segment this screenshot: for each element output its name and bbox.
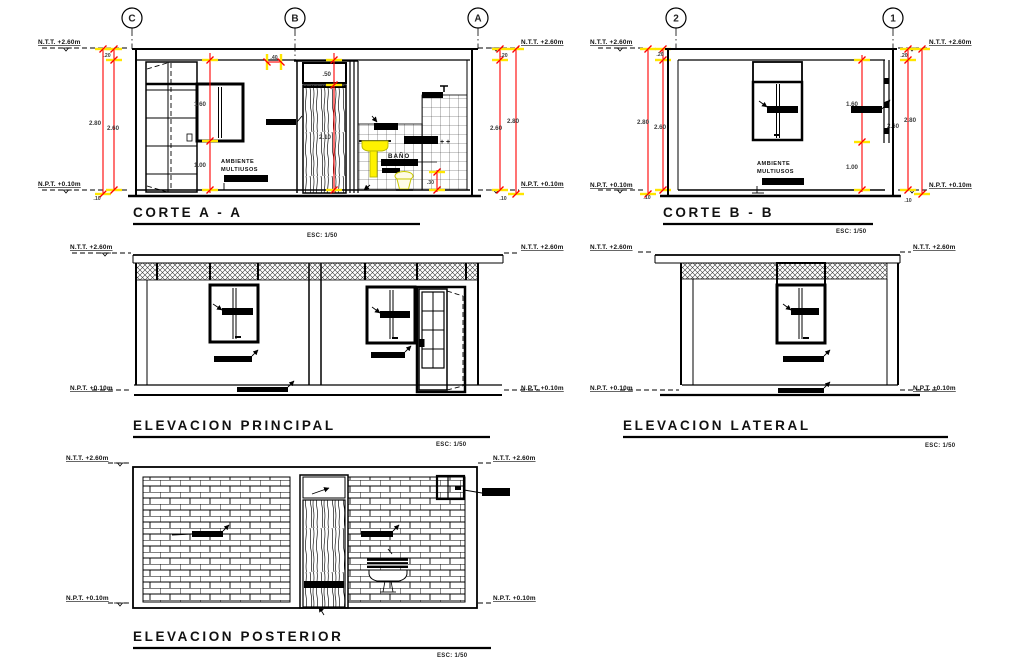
dim-010: .10 bbox=[904, 198, 911, 204]
redacted-note-bar bbox=[380, 311, 410, 318]
redacted-note-bar bbox=[224, 175, 268, 182]
level-label-ntt: N.T.T. +2.60m bbox=[493, 455, 536, 462]
dim-260: 2.60 bbox=[490, 125, 503, 132]
level-label-npt: N.P.T. +0.10m bbox=[493, 595, 536, 602]
level-label-ntt: N.T.T. +2.60m bbox=[521, 244, 564, 251]
redacted-note-bar bbox=[361, 531, 393, 537]
dim-100: 1.00 bbox=[194, 162, 207, 169]
redacted-note-bar bbox=[783, 356, 824, 362]
roof-slab bbox=[133, 255, 503, 263]
level-label-npt: N.P.T. +0.10m bbox=[70, 385, 113, 392]
room-name-line2: MULTIUSOS bbox=[221, 167, 258, 173]
tap-cross-symbols: + + bbox=[440, 139, 450, 146]
room-name-line1: AMBIENTE bbox=[757, 161, 790, 167]
redacted-note-bar bbox=[382, 168, 400, 173]
level-label-ntt: N.T.T. +2.60m bbox=[590, 244, 633, 251]
redacted-note-bar bbox=[237, 387, 288, 392]
door-knob bbox=[420, 339, 425, 347]
dim-010: .10 bbox=[499, 196, 506, 202]
grid-label-b: B bbox=[291, 14, 298, 25]
dim-020: .20 bbox=[103, 53, 110, 59]
scale-label: ESC: 1/50 bbox=[436, 442, 467, 448]
dim-280: 2.80 bbox=[89, 120, 102, 127]
redacted-note-bar bbox=[778, 388, 824, 393]
corte-b-title-block: CORTE B - B ESC: 1/50 bbox=[663, 205, 873, 235]
corte-b-inner-dimension: 1.60 1.00 bbox=[846, 55, 890, 194]
dim-030: .30 bbox=[427, 180, 434, 186]
corte-b-left-dimensions: N.T.T. +2.60m N.P.T. +0.10m 2.80 2.60 .2… bbox=[590, 39, 671, 201]
room-name-line1: AMBIENTE bbox=[221, 159, 254, 165]
level-label-npt: N.P.T. +0.10m bbox=[913, 385, 956, 392]
corte-a-title-block: CORTE A - A ESC: 1/50 bbox=[133, 205, 420, 239]
dim-020: .20 bbox=[500, 53, 507, 59]
grid-label-2: 2 bbox=[673, 14, 679, 25]
plinth-and-ground bbox=[92, 385, 540, 395]
door-leaf-wood bbox=[303, 500, 345, 607]
room-label-multiuse: AMBIENTE MULTIUSOS bbox=[752, 161, 804, 193]
redacted-note-bar bbox=[851, 106, 882, 113]
view-title: ELEVACION PRINCIPAL bbox=[133, 418, 336, 433]
dim-260: 2.60 bbox=[654, 124, 667, 131]
elev-principal-view: N.T.T. +2.60m N.T.T. +2.60m N.P.T. +0.10… bbox=[70, 244, 564, 448]
corte-b-right-dimensions: N.T.T. +2.60m N.P.T. +0.10m .20 2.60 2.8… bbox=[887, 39, 972, 204]
redacted-note-bar bbox=[192, 531, 223, 537]
scale-label: ESC: 1/50 bbox=[925, 443, 956, 449]
redacted-note-bar bbox=[767, 106, 798, 113]
grid-bubble-1: 1 bbox=[883, 8, 903, 28]
drawing-sheet: C B A N.T.T. +2.60m N.P.T. +0.10m 2.80 2… bbox=[0, 0, 1017, 661]
facade-columns bbox=[681, 263, 898, 385]
elev-posterior-view: N.T.T. +2.60m N.T.T. +2.60m N.P.T. +0.10… bbox=[66, 455, 536, 659]
level-label-npt: N.P.T. +0.10m bbox=[590, 385, 633, 392]
facade-columns bbox=[136, 263, 478, 385]
level-label-npt: N.P.T. +0.10m bbox=[590, 182, 633, 189]
wash-basin bbox=[369, 570, 407, 581]
dim-280: 2.80 bbox=[507, 118, 520, 125]
elev-principal-title-block: ELEVACION PRINCIPAL ESC: 1/50 bbox=[133, 418, 490, 448]
redacted-note-bar bbox=[371, 352, 405, 358]
level-label-npt: N.P.T. +0.10m bbox=[38, 181, 81, 188]
dim-040: .40 bbox=[270, 55, 277, 61]
corte-a-view: C B A N.T.T. +2.60m N.P.T. +0.10m 2.80 2… bbox=[38, 8, 564, 239]
bath-label: BAÑO bbox=[388, 153, 410, 160]
grid-bubble-2: 2 bbox=[666, 8, 686, 28]
grid-bubble-a: A bbox=[468, 8, 488, 28]
grid-label-c: C bbox=[128, 14, 135, 25]
dim-160: 1.60 bbox=[194, 101, 207, 108]
brick-wall-left bbox=[143, 477, 290, 602]
level-label-ntt: N.T.T. +2.60m bbox=[590, 39, 633, 46]
roof-slab bbox=[655, 255, 900, 263]
level-label-npt: N.P.T. +0.10m bbox=[929, 182, 972, 189]
drawing-canvas: C B A N.T.T. +2.60m N.P.T. +0.10m 2.80 2… bbox=[0, 0, 1017, 661]
lintel-dim-040: .40 bbox=[264, 54, 285, 70]
level-label-ntt: N.T.T. +2.60m bbox=[521, 39, 564, 46]
level-label-ntt: N.T.T. +2.60m bbox=[929, 39, 972, 46]
grid-label-a: A bbox=[474, 14, 481, 25]
window-2 bbox=[367, 287, 415, 343]
window-1 bbox=[210, 285, 258, 342]
dim-280: 2.80 bbox=[637, 119, 650, 126]
corte-b-view: 2 1 N.T.T. +2.60m N.P.T. +0.10m 2.80 2.6… bbox=[590, 8, 972, 235]
level-label-ntt: N.T.T. +2.60m bbox=[913, 244, 956, 251]
redacted-note-bar bbox=[482, 488, 510, 496]
door-transom bbox=[303, 477, 345, 498]
dim-010: .10 bbox=[643, 195, 650, 201]
redacted-note-bar bbox=[791, 308, 819, 315]
redacted-note-bar bbox=[214, 356, 252, 362]
level-label-npt: N.P.T. +0.10m bbox=[521, 181, 564, 188]
hatched-beam-band bbox=[136, 263, 478, 280]
redacted-note-bar bbox=[404, 136, 438, 144]
scale-label: ESC: 1/50 bbox=[307, 233, 338, 239]
dim-010: .10 bbox=[93, 196, 100, 202]
redacted-note-bar bbox=[222, 308, 253, 315]
dim-050: .50 bbox=[322, 71, 331, 78]
view-title: CORTE B - B bbox=[663, 205, 774, 220]
shower-ledge-bar bbox=[422, 92, 443, 98]
shelf-bars bbox=[367, 558, 408, 568]
rear-door bbox=[300, 475, 348, 615]
dim-020: .20 bbox=[900, 53, 907, 59]
dim-020: .20 bbox=[656, 52, 663, 58]
door-swing-dashed bbox=[447, 291, 463, 296]
redacted-note-bar bbox=[381, 159, 418, 166]
grid-bubble-c: C bbox=[122, 8, 142, 28]
corte-a-right-dimensions: N.T.T. +2.60m N.P.T. +0.10m .20 2.60 2.8… bbox=[478, 39, 564, 202]
redacted-note-bar bbox=[304, 581, 344, 588]
door-section: .50 2.10 bbox=[294, 53, 358, 194]
level-label-npt: N.P.T. +0.10m bbox=[521, 385, 564, 392]
bathroom-section: + + BAÑO .30 bbox=[358, 86, 467, 194]
room-label-multiuse: AMBIENTE MULTIUSOS bbox=[218, 159, 268, 190]
sink bbox=[362, 141, 388, 151]
level-label-ntt: N.T.T. +2.60m bbox=[38, 39, 81, 46]
elev-lateral-title-block: ELEVACION LATERAL ESC: 1/50 bbox=[623, 418, 956, 449]
elev-lateral-view: N.T.T. +2.60m N.T.T. +2.60m N.P.T. +0.10… bbox=[590, 244, 956, 449]
dim-280: 2.80 bbox=[904, 117, 917, 124]
view-title: CORTE A - A bbox=[133, 205, 243, 220]
toilet-bowl bbox=[397, 179, 411, 189]
view-title: ELEVACION POSTERIOR bbox=[133, 629, 343, 644]
corte-a-left-dimensions: N.T.T. +2.60m N.P.T. +0.10m 2.80 2.60 .2… bbox=[38, 39, 127, 202]
dim-100: 1.00 bbox=[846, 164, 859, 171]
grid-bubble-b: B bbox=[285, 8, 305, 28]
level-label-npt: N.P.T. +0.10m bbox=[66, 595, 109, 602]
grid-label-1: 1 bbox=[890, 14, 896, 25]
level-label-ntt: N.T.T. +2.60m bbox=[66, 455, 109, 462]
sink-pedestal bbox=[370, 151, 377, 177]
dim-260: 2.60 bbox=[107, 125, 120, 132]
window-section-center bbox=[753, 62, 802, 140]
scale-label: ESC: 1/50 bbox=[437, 653, 468, 659]
closet-handle bbox=[187, 134, 192, 141]
scale-label: ESC: 1/50 bbox=[836, 229, 867, 235]
room-name-line2: MULTIUSOS bbox=[757, 169, 794, 175]
dim-210: 2.10 bbox=[319, 134, 332, 141]
redacted-note-bar bbox=[374, 123, 398, 130]
elev-posterior-title-block: ELEVACION POSTERIOR ESC: 1/50 bbox=[133, 629, 491, 659]
redacted-note-bar bbox=[762, 178, 804, 185]
level-label-ntt: N.T.T. +2.60m bbox=[70, 244, 113, 251]
glazed-door bbox=[417, 287, 465, 392]
hatched-beam-band bbox=[681, 263, 887, 279]
rear-small-window bbox=[437, 476, 510, 499]
view-title: ELEVACION LATERAL bbox=[623, 418, 811, 433]
